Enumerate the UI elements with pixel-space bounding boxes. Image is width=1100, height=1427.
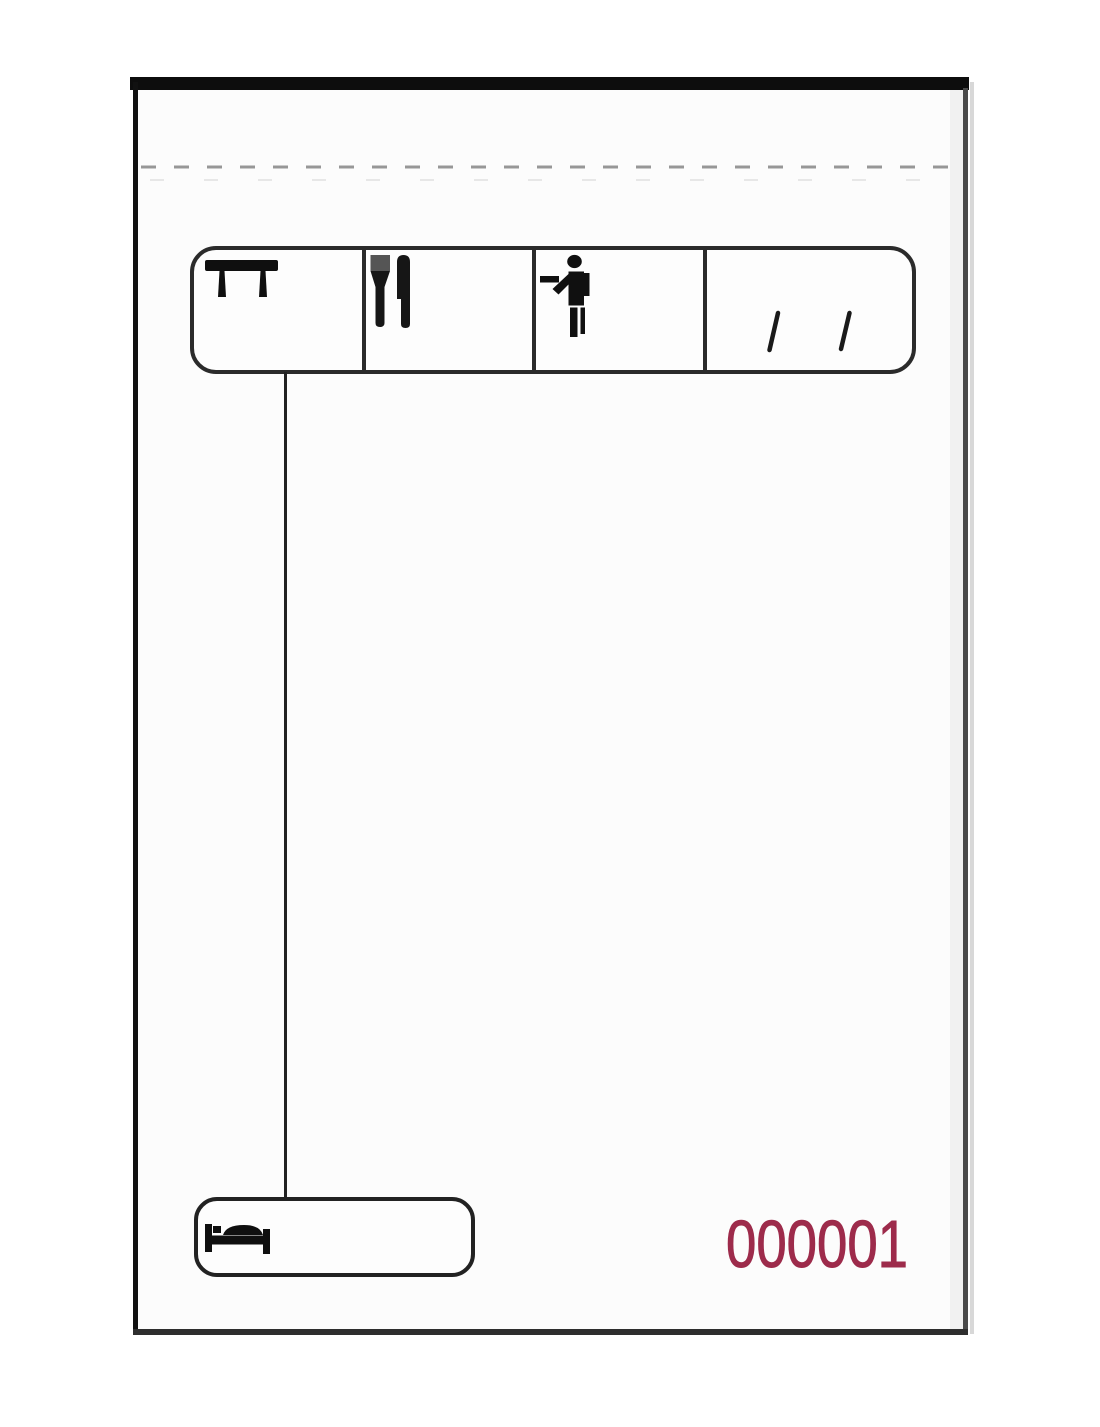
svg-text:000001: 000001 — [726, 1207, 908, 1282]
